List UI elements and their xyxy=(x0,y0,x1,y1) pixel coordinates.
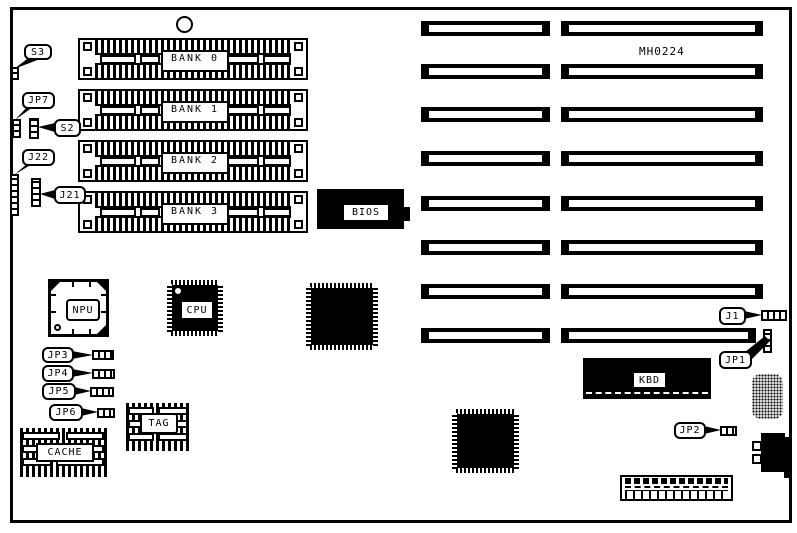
expansion-slot xyxy=(561,284,763,299)
socket-latch xyxy=(83,144,92,153)
slot-opening xyxy=(569,25,755,32)
bank-label: BANK 3 xyxy=(161,203,229,225)
memory-chip xyxy=(140,55,160,64)
callout-jp3: JP3 xyxy=(42,347,74,363)
io-controller-ic xyxy=(452,409,519,473)
slot-opening xyxy=(429,25,542,32)
socket-latch xyxy=(83,93,92,102)
expansion-slot xyxy=(421,196,550,211)
memory-chip xyxy=(263,157,291,166)
cache-label: CACHE xyxy=(36,443,94,462)
power-pins-top xyxy=(625,478,728,484)
s2-connector xyxy=(29,118,39,139)
socket-ticks xyxy=(51,288,56,328)
bios-chip: BIOS xyxy=(317,189,404,229)
socket-latch xyxy=(294,169,303,178)
simm-bank-2: BANK 2 xyxy=(78,140,308,182)
slot-opening xyxy=(569,111,755,118)
slot-opening xyxy=(569,155,755,162)
expansion-slot xyxy=(561,21,763,36)
expansion-slot xyxy=(561,107,763,122)
j21-connector xyxy=(31,178,41,207)
memory-chip xyxy=(227,208,259,217)
chip-pins xyxy=(373,287,378,346)
sram-chip xyxy=(66,432,104,440)
socket-latch xyxy=(83,220,92,229)
chip-pins xyxy=(456,468,515,473)
simm-bank-0: BANK 0 xyxy=(78,38,308,80)
callout-jp5: JP5 xyxy=(42,383,76,400)
callout-j21: J21 xyxy=(54,186,86,204)
memory-chip xyxy=(140,208,160,217)
callout-jp4: JP4 xyxy=(42,365,74,382)
tag-sram-block: TAG xyxy=(126,403,192,451)
npu-label: NPU xyxy=(66,299,100,321)
socket-latch xyxy=(83,118,92,127)
socket-latch xyxy=(83,169,92,178)
memory-chip xyxy=(227,157,259,166)
callout-j22: J22 xyxy=(22,149,55,166)
slot-opening xyxy=(429,332,542,339)
socket-latch xyxy=(294,118,303,127)
slot-opening xyxy=(569,288,755,295)
socket-ticks xyxy=(57,282,100,287)
expansion-slot xyxy=(561,240,763,255)
callout-s3: S3 xyxy=(24,44,52,60)
expansion-slot xyxy=(421,284,550,299)
socket-dashes xyxy=(586,392,708,394)
slot-opening xyxy=(569,68,755,75)
memory-chip xyxy=(227,55,259,64)
bios-side-tab xyxy=(404,207,410,221)
bank-label: BANK 2 xyxy=(161,152,229,174)
socket-latch xyxy=(83,42,92,51)
slot-opening xyxy=(429,288,542,295)
chip-pins xyxy=(171,331,219,336)
bios-label: BIOS xyxy=(342,203,390,222)
memory-chip xyxy=(100,208,136,217)
memory-chip xyxy=(227,106,259,115)
corner-key xyxy=(97,325,106,334)
socket-latch xyxy=(294,220,303,229)
mounting-hole xyxy=(176,16,193,33)
motherboard-diagram: { "diagram": { "part_number": "MH0224", … xyxy=(0,0,797,533)
callout-j1: J1 xyxy=(719,307,746,325)
pin1-dot xyxy=(175,288,181,294)
memory-chip xyxy=(263,55,291,64)
jp5-connector xyxy=(90,387,114,397)
socket-latch xyxy=(294,42,303,51)
slot-opening xyxy=(429,244,542,251)
din-keyboard-connector xyxy=(761,433,785,472)
keyboard-fuse-area xyxy=(752,374,783,419)
npu-socket: NPU xyxy=(48,279,109,337)
callout-jp1: JP1 xyxy=(719,351,752,369)
power-pins-bottom xyxy=(625,490,728,500)
j22-connector xyxy=(10,174,19,216)
expansion-slot xyxy=(561,196,763,211)
chip-pins xyxy=(310,345,374,350)
expansion-slot xyxy=(421,240,550,255)
tag-label: TAG xyxy=(140,413,178,434)
jp2-connector xyxy=(720,426,737,436)
slot-opening xyxy=(429,111,542,118)
cpu-label: CPU xyxy=(180,300,214,320)
s3-connector xyxy=(11,67,19,80)
chip-body xyxy=(457,414,514,468)
socket-latch xyxy=(294,144,303,153)
slot-opening xyxy=(569,244,755,251)
simm-bank-3: BANK 3 xyxy=(78,191,308,233)
kbd-chip: KBD xyxy=(583,358,711,399)
expansion-slot xyxy=(421,107,550,122)
bank-label: BANK 1 xyxy=(161,101,229,123)
corner-key xyxy=(97,282,106,291)
slot-opening xyxy=(569,200,755,207)
sram-chip xyxy=(128,433,154,441)
din-keyboard-connector-edge xyxy=(784,437,792,478)
socket-ticks xyxy=(101,288,106,328)
memory-chip xyxy=(100,157,136,166)
simm-bank-1: BANK 1 xyxy=(78,89,308,131)
pin1-dot xyxy=(54,324,61,331)
cpu-chip: CPU xyxy=(167,280,223,336)
memory-chip xyxy=(140,157,160,166)
socket-latch xyxy=(294,67,303,76)
jp7-connector xyxy=(12,119,21,138)
jp3-connector xyxy=(92,350,114,360)
callout-jp2: JP2 xyxy=(674,422,706,439)
callout-jp6: JP6 xyxy=(49,404,83,421)
corner-key xyxy=(51,282,60,291)
slot-opening xyxy=(429,155,542,162)
part-number: MH0224 xyxy=(639,45,685,58)
slot-opening xyxy=(429,200,542,207)
socket-latch xyxy=(83,67,92,76)
expansion-slot xyxy=(561,151,763,166)
expansion-slot xyxy=(421,151,550,166)
power-connector xyxy=(620,475,733,501)
callout-s2: S2 xyxy=(54,119,81,137)
memory-chip xyxy=(263,208,291,217)
jp4-connector xyxy=(92,369,115,379)
kbd-label: KBD xyxy=(632,371,667,389)
expansion-slot xyxy=(561,64,763,79)
memory-chip xyxy=(100,106,136,115)
j1-connector xyxy=(761,310,787,321)
expansion-slot xyxy=(561,328,756,343)
jp6-connector xyxy=(97,408,115,418)
power-divider xyxy=(625,486,728,488)
expansion-slot xyxy=(421,64,550,79)
socket-ticks xyxy=(57,329,100,334)
chip-body xyxy=(311,288,373,345)
memory-chip xyxy=(263,106,291,115)
expansion-slot xyxy=(421,328,550,343)
socket-latch xyxy=(294,195,303,204)
sram-chip xyxy=(158,433,188,441)
chip-pins xyxy=(514,413,519,469)
bank-label: BANK 0 xyxy=(161,50,229,72)
slot-opening xyxy=(429,68,542,75)
chipset-ic xyxy=(306,283,378,350)
slot-opening xyxy=(569,332,748,339)
expansion-slot xyxy=(421,21,550,36)
socket-latch xyxy=(294,93,303,102)
sram-chip xyxy=(22,432,60,440)
memory-chip xyxy=(100,55,136,64)
callout-jp7: JP7 xyxy=(22,92,55,109)
memory-chip xyxy=(140,106,160,115)
chip-pins xyxy=(218,284,223,332)
cache-sram-block: CACHE xyxy=(20,428,107,477)
jp1-connector xyxy=(763,329,772,353)
